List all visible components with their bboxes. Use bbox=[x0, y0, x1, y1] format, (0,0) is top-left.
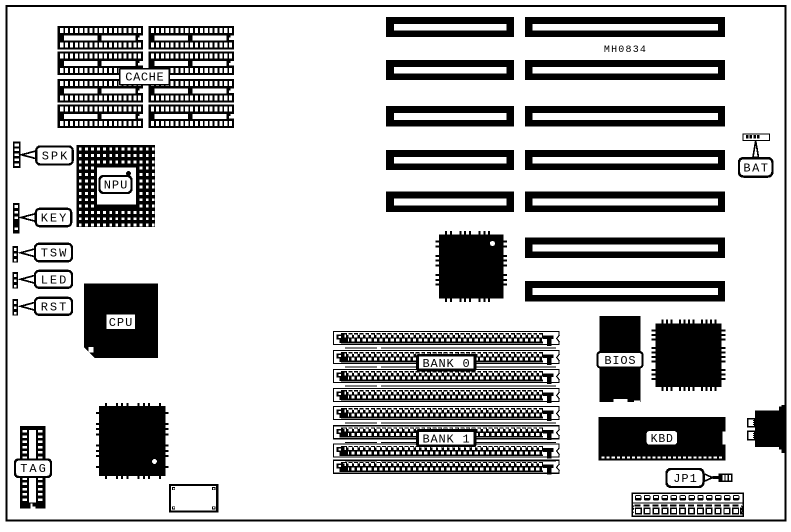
svg-text:TSW: TSW bbox=[41, 247, 69, 261]
svg-text:BANK 0: BANK 0 bbox=[422, 357, 470, 371]
svg-text:NPU: NPU bbox=[104, 179, 129, 193]
svg-text:CACHE: CACHE bbox=[125, 71, 164, 85]
svg-text:SPK: SPK bbox=[42, 150, 70, 164]
svg-text:MH0834: MH0834 bbox=[604, 45, 647, 56]
svg-text:JP1: JP1 bbox=[673, 472, 698, 486]
svg-text:BIOS: BIOS bbox=[604, 354, 636, 368]
svg-text:LED: LED bbox=[41, 273, 69, 287]
svg-text:TAG: TAG bbox=[20, 462, 48, 476]
svg-text:KEY: KEY bbox=[41, 212, 69, 226]
svg-text:KBD: KBD bbox=[651, 433, 674, 446]
svg-text:CPU: CPU bbox=[109, 316, 134, 330]
svg-text:RST: RST bbox=[41, 300, 69, 314]
svg-text:BANK 1: BANK 1 bbox=[422, 432, 470, 446]
svg-text:BAT: BAT bbox=[743, 161, 769, 175]
